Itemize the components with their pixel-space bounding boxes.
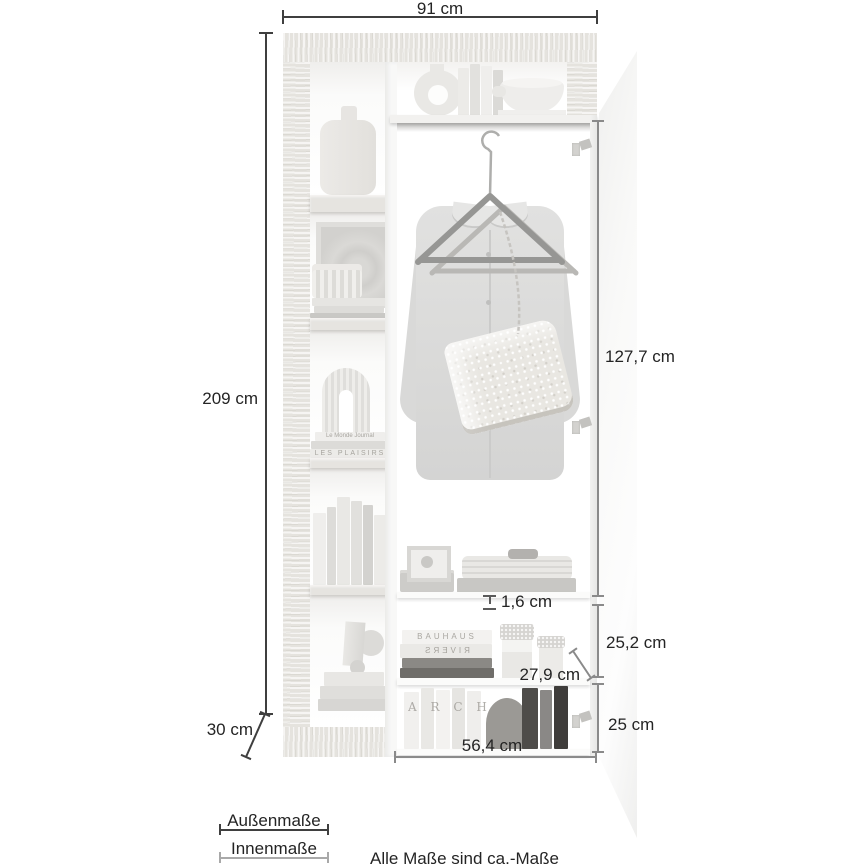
dim-label-upper-compartment: 25,2 cm xyxy=(606,634,686,651)
folded-blanket xyxy=(462,556,572,580)
dim-label-shelf-thickness: 1,6 cm xyxy=(501,593,561,610)
hinge-icon xyxy=(572,712,592,730)
book-stack xyxy=(312,298,386,306)
bowl xyxy=(500,78,564,116)
standing-books xyxy=(313,494,389,585)
book-stack xyxy=(311,441,389,449)
hinge-icon xyxy=(572,418,592,436)
dim-tick xyxy=(595,751,597,763)
blanket-strap xyxy=(508,549,538,559)
shelf xyxy=(310,195,390,212)
book-plaisirs: LES PLAISIRS xyxy=(310,449,390,458)
legend-outer-line xyxy=(219,829,329,831)
fluted-box xyxy=(312,264,362,298)
dim-tick xyxy=(282,10,284,24)
dim-line-lower-compartment xyxy=(597,684,599,753)
tray xyxy=(457,578,576,593)
dim-label-outer-depth: 30 cm xyxy=(203,721,253,738)
dim-label-inner-depth: 27,9 cm xyxy=(516,666,580,683)
dim-label-outer-height: 209 cm xyxy=(198,390,258,407)
legend-inner-line xyxy=(219,857,329,859)
interior-top-board xyxy=(390,115,597,123)
dim-tick xyxy=(596,10,598,24)
left-shelf-column: Le Monde Journal LES PLAISIRS xyxy=(310,62,390,727)
shelf-thickness-icon xyxy=(483,595,496,610)
shelf xyxy=(310,318,390,330)
binder-arch-label: A R C H xyxy=(408,700,492,714)
hinge-icon xyxy=(572,140,592,158)
dim-tick xyxy=(259,713,273,715)
frame-base-panel xyxy=(283,727,387,757)
legend-tick xyxy=(327,824,329,835)
legend-tick xyxy=(219,824,221,835)
dim-line-inner-height xyxy=(597,121,599,597)
legend-outer-label: Außenmaße xyxy=(219,812,329,829)
shelf xyxy=(310,458,390,468)
vase xyxy=(320,106,376,195)
frame-left-stile xyxy=(283,62,310,757)
dim-line-outer-height xyxy=(265,33,267,714)
wardrobe: Le Monde Journal LES PLAISIRS xyxy=(0,0,868,868)
dim-label-outer-width: 91 cm xyxy=(390,0,490,17)
book-journal: Le Monde Journal xyxy=(315,432,385,441)
product-dimension-diagram: Le Monde Journal LES PLAISIRS xyxy=(0,0,868,868)
interior-top-shadow xyxy=(397,123,590,132)
dim-tick xyxy=(592,595,604,597)
book-stack xyxy=(314,306,384,313)
dim-label-inner-height: 127,7 cm xyxy=(605,348,695,365)
arch-sculpture xyxy=(322,368,370,432)
legend-tick xyxy=(219,852,221,863)
dim-label-lower-compartment: 25 cm xyxy=(608,716,678,733)
book-stack-shelf: BAUHAUS RIVERS xyxy=(400,620,494,678)
shelf xyxy=(310,585,390,595)
dim-line-inner-width xyxy=(395,756,597,758)
frame-top-panel xyxy=(283,33,597,62)
dim-tick xyxy=(592,751,604,753)
interior-right-wall xyxy=(590,115,597,757)
bottom-sculpture xyxy=(318,622,388,727)
dim-tick xyxy=(592,604,604,606)
center-divider xyxy=(385,62,397,757)
dim-tick xyxy=(592,120,604,122)
dim-label-inner-width: 56,4 cm xyxy=(452,737,532,754)
dim-line-upper-compartment xyxy=(597,605,599,678)
top-compartment xyxy=(397,62,567,115)
donut-vase xyxy=(414,70,462,116)
measurement-note: Alle Maße sind ca.-Maße xyxy=(370,850,590,867)
legend-inner-label: Innenmaße xyxy=(219,840,329,857)
dim-tick xyxy=(592,683,604,685)
small-photo-frame xyxy=(407,546,451,582)
legend-tick xyxy=(327,852,329,863)
dim-tick xyxy=(394,751,396,763)
dim-tick xyxy=(592,676,604,678)
dim-tick xyxy=(259,32,273,34)
frame-right-stile-top xyxy=(567,62,597,115)
